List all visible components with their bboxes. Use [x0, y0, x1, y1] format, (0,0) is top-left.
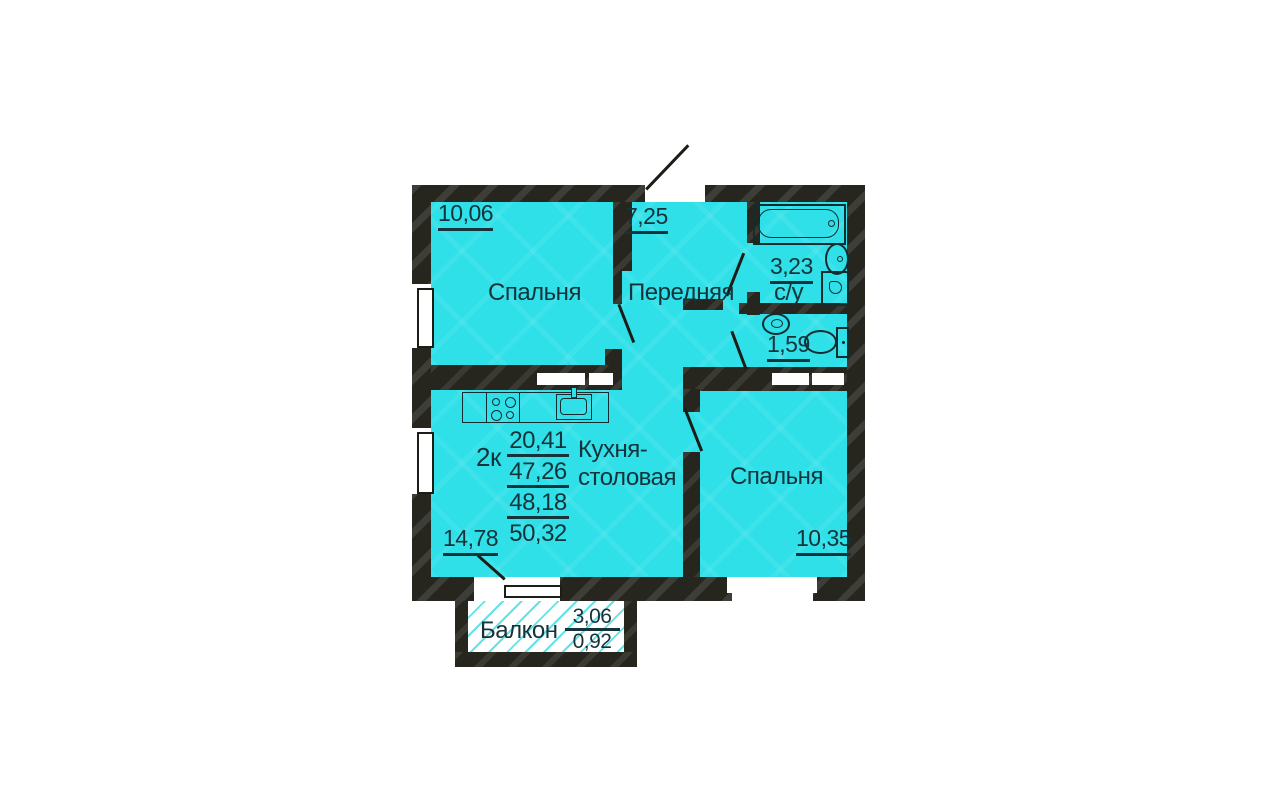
wardrobe-notch: [772, 373, 809, 385]
balcony-area-full: 3,06: [563, 605, 621, 629]
summary-area-4: 50,32: [507, 523, 569, 547]
balcony-wall-bottom: [455, 652, 637, 667]
summary-area-1: 20,41: [507, 430, 569, 457]
kitchen-label-line1: Кухня-: [578, 436, 647, 464]
wall-bedroom1-hallway-thin: [613, 269, 622, 304]
summary-area-2: 47,26: [507, 461, 569, 488]
hallway-label: Передняя: [628, 279, 734, 307]
balcony: Балкон 3,06 0,92: [455, 601, 637, 667]
wall-bedroom2-left-lower: [683, 452, 700, 577]
balcony-window-sill: [504, 585, 562, 598]
balcony-area-reduced: 0,92: [563, 630, 621, 654]
bathtub-icon: [753, 204, 846, 245]
kitchen-area: 14,78: [443, 525, 498, 556]
stove-icon: [486, 392, 520, 423]
summary-area-3: 48,18: [507, 492, 569, 519]
bedroom2-area: 10,35: [796, 525, 851, 556]
window-sash: [417, 432, 434, 494]
bedroom2-label: Спальня: [730, 463, 823, 491]
wardrobe-notch: [812, 373, 844, 385]
floor-plan: 10,06 Спальня 7,25 Передняя 3,23 с/у 1,5…: [412, 185, 865, 601]
window-sash: [417, 288, 434, 348]
window: [727, 577, 817, 593]
kitchen-label-line2: столовая: [578, 464, 676, 492]
entrance-door-swing-line: [645, 144, 689, 190]
wardrobe-notch: [537, 373, 585, 385]
wardrobe-notch: [589, 373, 613, 385]
toilet-tank-icon: [836, 327, 849, 358]
entrance-door-opening: [645, 185, 705, 202]
apartment-areas-summary: 20,41 47,26 48,18 50,32: [507, 430, 569, 551]
washing-machine-icon: [821, 271, 849, 306]
hallway-area: 7,25: [625, 203, 668, 234]
window-sill: [732, 593, 813, 601]
kitchen-faucet-icon: [571, 387, 577, 398]
balcony-label: Балкон: [480, 617, 557, 645]
bedroom1-label: Спальня: [488, 279, 581, 307]
bedroom1-area: 10,06: [438, 200, 493, 231]
apartment-type-label: 2к: [476, 442, 501, 473]
wc-area: 1,59: [767, 331, 810, 362]
bathroom-label: с/у: [774, 279, 803, 307]
